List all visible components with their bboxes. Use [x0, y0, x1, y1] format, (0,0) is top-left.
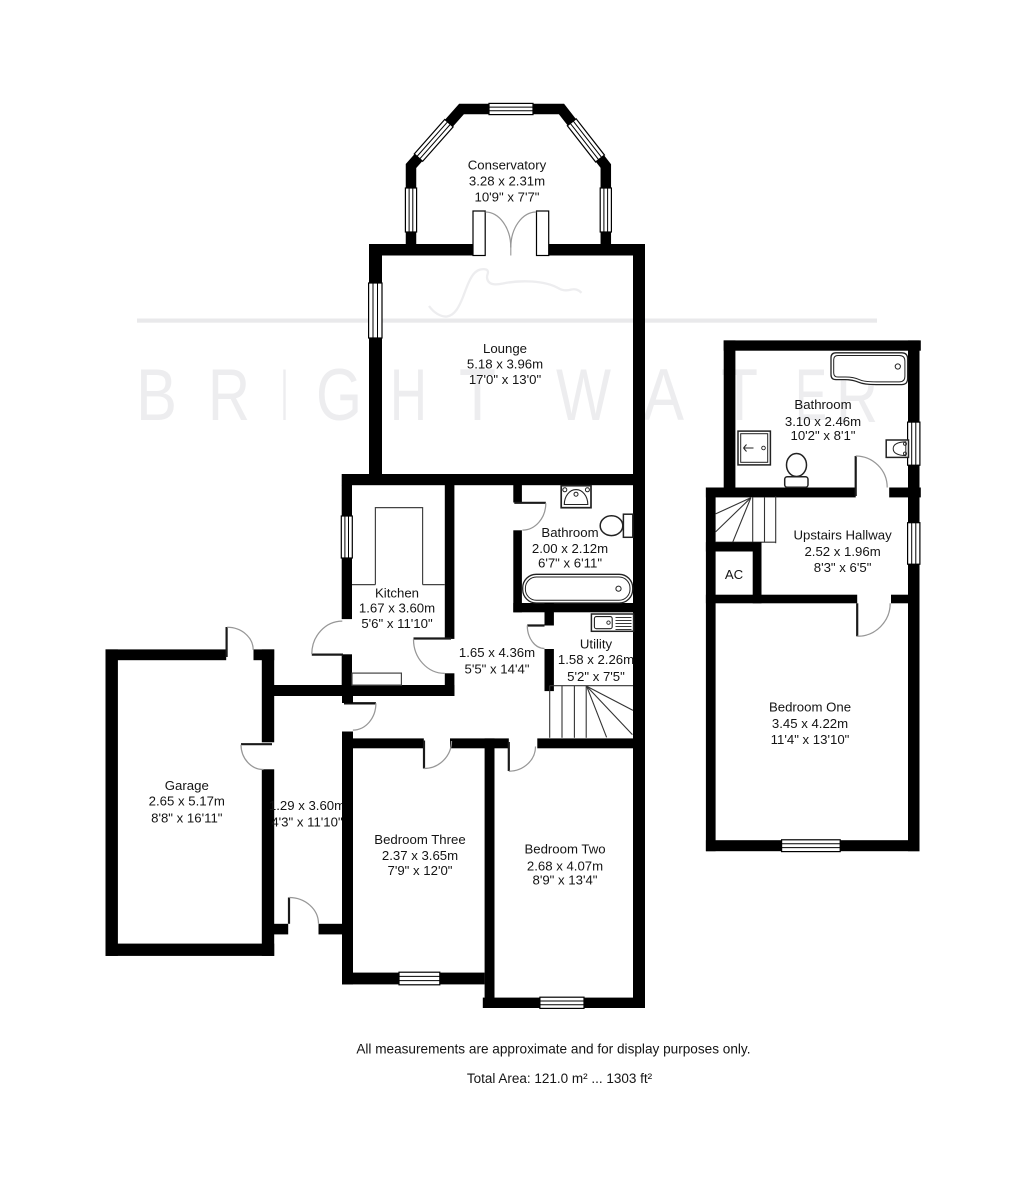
svg-text:Bedroom One: Bedroom One	[769, 700, 851, 715]
svg-text:5'2" x 7'5": 5'2" x 7'5"	[567, 669, 625, 684]
svg-text:W: W	[556, 355, 611, 436]
svg-text:5'5" x 14'4": 5'5" x 14'4"	[465, 661, 530, 676]
svg-text:Kitchen: Kitchen	[375, 585, 419, 600]
svg-text:2.00 x 2.12m: 2.00 x 2.12m	[532, 541, 608, 556]
svg-text:Upstairs Hallway: Upstairs Hallway	[793, 527, 892, 542]
svg-text:3.28 x 2.31m: 3.28 x 2.31m	[469, 174, 545, 189]
svg-text:4'3" x 11'10": 4'3" x 11'10"	[271, 814, 343, 829]
svg-text:6'7" x 6'11": 6'7" x 6'11"	[538, 556, 602, 571]
svg-text:5.18 x 3.96m: 5.18 x 3.96m	[467, 357, 543, 372]
svg-text:10'9" x 7'7": 10'9" x 7'7"	[475, 190, 540, 205]
svg-text:8'9" x 13'4": 8'9" x 13'4"	[533, 873, 598, 888]
svg-text:11'4" x 13'10": 11'4" x 13'10"	[771, 732, 850, 747]
svg-text:2.65 x 5.17m: 2.65 x 5.17m	[149, 794, 225, 809]
svg-text:Conservatory: Conservatory	[468, 158, 547, 173]
svg-text:3.45 x 4.22m: 3.45 x 4.22m	[772, 716, 848, 731]
svg-text:R: R	[208, 355, 250, 436]
svg-text:B: B	[136, 355, 177, 436]
svg-text:7'9" x 12'0": 7'9" x 12'0"	[388, 863, 453, 878]
svg-text:G: G	[316, 355, 362, 436]
svg-text:All measurements are approxima: All measurements are approximate and for…	[356, 1042, 750, 1057]
svg-text:Total Area: 121.0 m² ... 1303: Total Area: 121.0 m² ... 1303 ft²	[467, 1071, 653, 1086]
svg-text:I: I	[281, 355, 288, 436]
svg-text:2.37 x 3.65m: 2.37 x 3.65m	[382, 848, 458, 863]
svg-text:8'8" x 16'11": 8'8" x 16'11"	[151, 811, 223, 826]
svg-text:Bedroom Three: Bedroom Three	[374, 832, 465, 847]
svg-text:Bathroom: Bathroom	[794, 397, 851, 412]
svg-text:1.58 x 2.26m: 1.58 x 2.26m	[558, 652, 634, 667]
svg-text:Garage: Garage	[165, 778, 209, 793]
svg-text:AC: AC	[725, 567, 744, 582]
svg-text:Bedroom Two: Bedroom Two	[524, 842, 605, 857]
svg-text:2.52 x 1.96m: 2.52 x 1.96m	[804, 544, 880, 559]
svg-text:5'6" x 11'10": 5'6" x 11'10"	[361, 616, 433, 631]
svg-text:1.29 x 3.60m: 1.29 x 3.60m	[269, 798, 345, 813]
svg-text:17'0" x 13'0": 17'0" x 13'0"	[469, 372, 542, 387]
svg-text:H: H	[390, 355, 427, 436]
svg-text:Lounge: Lounge	[483, 341, 527, 356]
svg-text:1.67 x 3.60m: 1.67 x 3.60m	[359, 601, 435, 616]
svg-text:A: A	[643, 355, 684, 436]
svg-text:8'3" x 6'5": 8'3" x 6'5"	[814, 560, 872, 575]
svg-text:3.10 x 2.46m: 3.10 x 2.46m	[785, 414, 861, 429]
svg-text:Utility: Utility	[580, 636, 613, 651]
svg-text:10'2" x 8'1": 10'2" x 8'1"	[791, 428, 856, 443]
svg-text:1.65 x 4.36m: 1.65 x 4.36m	[459, 645, 535, 660]
svg-text:2.68 x 4.07m: 2.68 x 4.07m	[527, 858, 603, 873]
svg-text:Bathroom: Bathroom	[541, 525, 598, 540]
